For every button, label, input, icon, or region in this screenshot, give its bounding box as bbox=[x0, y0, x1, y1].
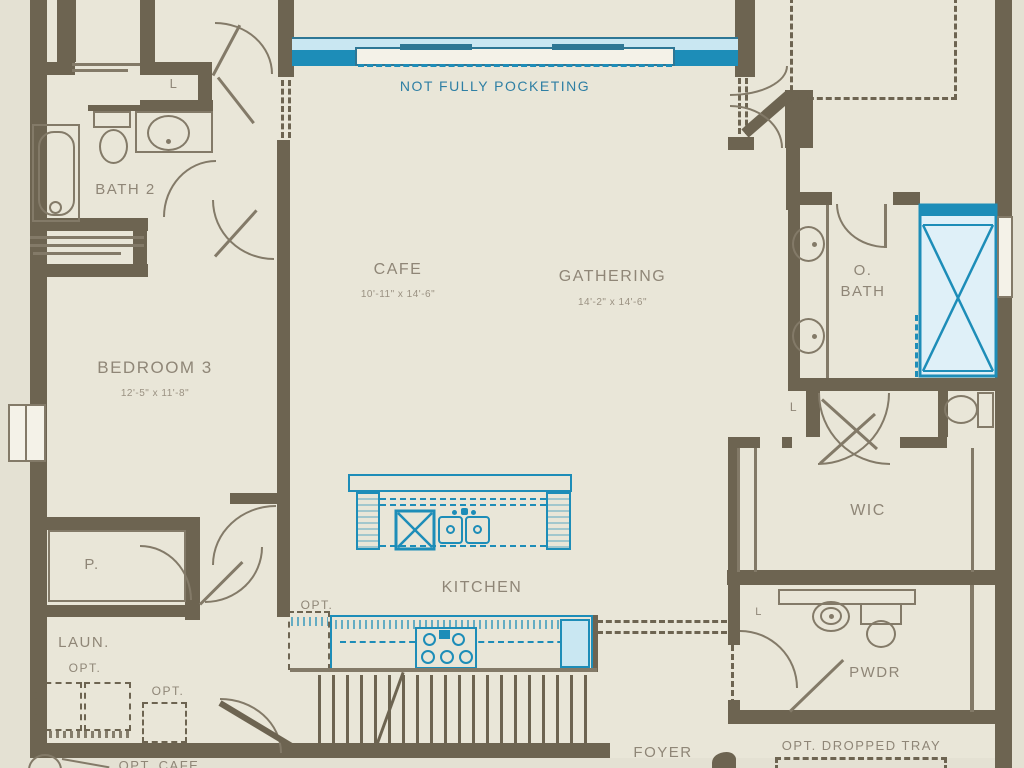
island-edge-dash bbox=[380, 545, 546, 547]
vanity-line bbox=[826, 205, 829, 378]
wall bbox=[30, 62, 75, 75]
wic-wall-line bbox=[754, 448, 757, 572]
faucet-dot bbox=[812, 334, 817, 339]
pocket-door-dash bbox=[288, 80, 291, 138]
cased-opening-dash bbox=[731, 645, 734, 705]
opt-dryer-box bbox=[84, 682, 131, 731]
door-leaf bbox=[884, 204, 887, 248]
wic-wall-line bbox=[737, 448, 740, 572]
leader-line bbox=[62, 758, 110, 768]
range-control bbox=[439, 630, 450, 639]
sliding-door-rail bbox=[400, 44, 472, 50]
wall bbox=[782, 437, 792, 448]
opt-label: OPT. bbox=[294, 598, 340, 612]
room-label-pantry: P. bbox=[72, 556, 112, 573]
wall bbox=[893, 192, 920, 205]
sliding-door-rail bbox=[552, 44, 624, 50]
toilet-bowl bbox=[99, 129, 128, 164]
island-edge-dash bbox=[380, 498, 546, 506]
room-label-obath-2: BATH bbox=[832, 283, 894, 300]
opt-washer-box bbox=[35, 682, 82, 731]
wall bbox=[30, 743, 610, 758]
shower-door-dash bbox=[915, 315, 918, 377]
burner bbox=[452, 633, 465, 646]
burner bbox=[423, 633, 436, 646]
burner bbox=[421, 650, 435, 664]
dims-cafe: 10'-11" x 14'-6" bbox=[338, 289, 458, 300]
toilet-tank bbox=[93, 111, 131, 128]
wall bbox=[57, 0, 76, 62]
toilet-tank bbox=[977, 392, 994, 428]
sink bbox=[792, 318, 825, 354]
window bbox=[997, 216, 1013, 298]
opt-cafe-label: OPT. CAFE bbox=[104, 758, 214, 768]
room-label-kitchen: KITCHEN bbox=[428, 579, 536, 597]
wic-wall-line bbox=[971, 448, 974, 572]
room-label-cafe: CAFE bbox=[348, 261, 448, 279]
opt-cabinet-hatch bbox=[291, 617, 328, 626]
room-label-gathering: GATHERING bbox=[540, 268, 685, 286]
wall bbox=[140, 0, 155, 62]
closet-label: L bbox=[782, 400, 806, 414]
dims-gathering: 14'-2" x 14'-6" bbox=[550, 297, 675, 308]
faucet-dot bbox=[166, 139, 171, 144]
floor-plan: NOT FULLY POCKETING 12'-4" x 10'-8" BATH… bbox=[0, 0, 1024, 768]
room-label-obath-1: O. bbox=[838, 262, 888, 279]
wall bbox=[133, 218, 147, 277]
wall bbox=[788, 192, 832, 205]
pocket-door-dash bbox=[281, 80, 284, 138]
ceiling-break-dash bbox=[597, 631, 727, 634]
sink bbox=[792, 226, 825, 262]
sliding-door-dash bbox=[358, 64, 672, 67]
room-label-powder: PWDR bbox=[836, 664, 914, 681]
wall bbox=[728, 710, 1012, 724]
wall bbox=[185, 517, 200, 620]
sliding-door-panel bbox=[292, 50, 356, 66]
ceiling-break-dash bbox=[597, 620, 727, 623]
pwdr-wall-line bbox=[970, 585, 974, 712]
closet-shelf bbox=[30, 236, 144, 239]
opt-dropped-tray-box bbox=[775, 757, 947, 768]
closet-label: L bbox=[152, 76, 196, 91]
sink-drain bbox=[473, 525, 482, 534]
not-fully-pocketing-note: NOT FULLY POCKETING bbox=[370, 78, 620, 94]
wall bbox=[277, 140, 290, 617]
toilet-bowl bbox=[866, 620, 896, 648]
toilet-bowl bbox=[944, 395, 978, 424]
wall bbox=[30, 264, 148, 277]
opt-patio-outline bbox=[790, 0, 957, 100]
front-door-symbol bbox=[712, 752, 736, 768]
opt-box bbox=[142, 702, 187, 743]
tub-drain bbox=[49, 201, 62, 214]
closet-shelf bbox=[72, 63, 140, 66]
room-label-bedroom3: BEDROOM 3 bbox=[60, 358, 250, 378]
dims-bedroom3: 12'-5" x 11'-8" bbox=[60, 388, 250, 399]
wall bbox=[230, 493, 290, 504]
burner bbox=[459, 650, 473, 664]
wall bbox=[198, 62, 212, 111]
sink-drain bbox=[446, 525, 455, 534]
island-counter bbox=[348, 474, 572, 492]
room-label-laundry: LAUN. bbox=[45, 634, 123, 651]
wall bbox=[727, 570, 1012, 585]
faucet-dot bbox=[471, 510, 476, 515]
burner bbox=[440, 650, 454, 664]
wall bbox=[30, 517, 200, 530]
closet-label: L bbox=[748, 606, 770, 618]
patio-dims: 12'-4" x 10'-8" bbox=[822, 0, 932, 2]
opt-label: OPT. bbox=[60, 661, 110, 675]
wall bbox=[788, 378, 1012, 391]
closet-shelf bbox=[72, 69, 128, 72]
room-label-wic: WIC bbox=[835, 502, 901, 520]
staircase bbox=[318, 675, 597, 743]
opt-dropped-tray-label: OPT. DROPPED TRAY bbox=[764, 738, 959, 753]
wall bbox=[900, 437, 947, 448]
wall bbox=[30, 0, 47, 743]
wall bbox=[593, 615, 598, 672]
window bbox=[8, 404, 46, 462]
wall bbox=[30, 605, 200, 617]
closet-shelf bbox=[33, 252, 121, 255]
opt-label: OPT. bbox=[143, 684, 193, 698]
faucet-dot bbox=[461, 508, 468, 515]
opt-box-hatch bbox=[35, 731, 131, 738]
window-line bbox=[25, 406, 27, 460]
room-label-bath2: BATH 2 bbox=[78, 181, 173, 198]
wall bbox=[728, 585, 740, 645]
sliding-door-panel bbox=[674, 50, 738, 66]
island-cabinet bbox=[546, 492, 571, 550]
faucet-dot bbox=[812, 242, 817, 247]
counter-end bbox=[560, 619, 590, 668]
faucet-dot bbox=[829, 614, 834, 619]
island-cabinet bbox=[356, 492, 380, 550]
closet-shelf bbox=[30, 244, 144, 247]
sink bbox=[147, 115, 190, 151]
stair-edge bbox=[290, 668, 597, 672]
shower bbox=[918, 203, 998, 378]
faucet-dot bbox=[452, 510, 457, 515]
room-label-foyer: FOYER bbox=[618, 744, 708, 761]
